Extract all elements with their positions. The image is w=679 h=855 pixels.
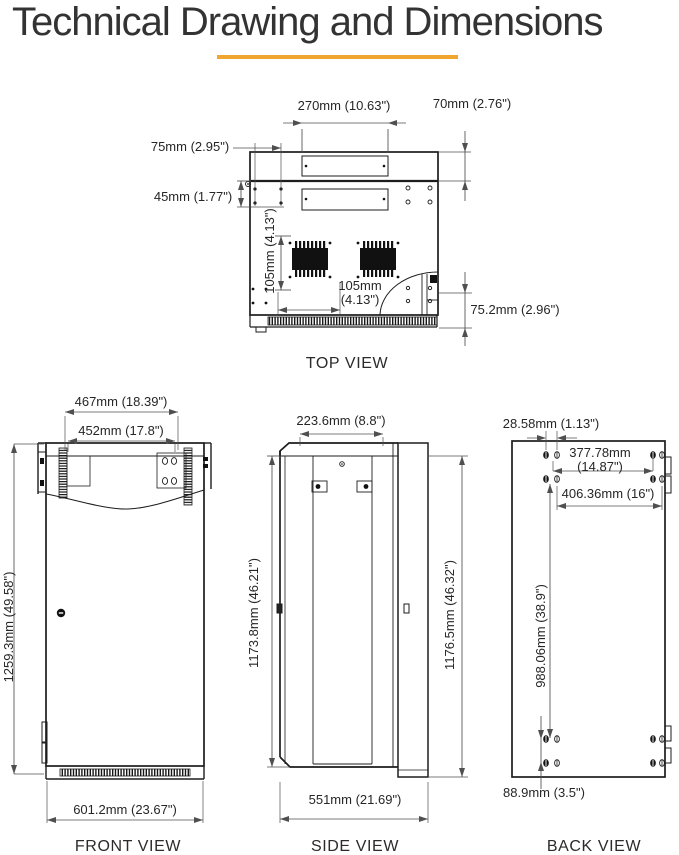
- front-vent-strip: [60, 769, 190, 776]
- dim-label-2858mm: 28.58mm (1.13"): [503, 417, 599, 431]
- dim-label-377mm: 377.78mm (14.87"): [569, 446, 630, 474]
- dim-105-line2: (4.13"): [338, 293, 381, 307]
- dim-label-75-2mm: 75.2mm (2.96"): [470, 303, 559, 317]
- wall-mount-plate: [398, 443, 428, 777]
- side-view-drawing: [277, 443, 428, 777]
- dim-label-467mm: 467mm (18.39"): [75, 395, 168, 409]
- foot: [256, 327, 266, 332]
- hinge-back-bottom-1: [665, 726, 671, 741]
- dim-label-1176mm: 1176.5mm (46.32"): [443, 560, 457, 670]
- front-view-drawing: [38, 443, 211, 779]
- dim-label-889mm: 88.9mm (3.5"): [503, 786, 585, 800]
- door-swing-arc: [380, 272, 438, 315]
- dim-377-line2: (14.87"): [569, 460, 630, 474]
- dim-label-105mm-vertical: 105mm (4.13"): [263, 208, 277, 294]
- dim-label-75mm: 75mm (2.95"): [151, 140, 229, 154]
- dim-label-452mm: 452mm (17.8"): [78, 424, 164, 438]
- top-vent-strip: [268, 317, 437, 325]
- hinge-back-bottom-2: [665, 748, 671, 763]
- cage-nut-holes: [162, 458, 176, 485]
- dim-label-551mm: 551mm (21.69"): [309, 793, 402, 807]
- fan-vent-left: [289, 241, 332, 278]
- hinge-back-top-2: [665, 476, 671, 493]
- hinge-back-top-1: [665, 457, 671, 474]
- latch-right: [404, 604, 409, 613]
- break-line: [46, 490, 204, 509]
- dim-label-70mm: 70mm (2.76"): [433, 97, 511, 111]
- dim-label-270mm: 270mm (10.63"): [298, 99, 391, 113]
- dim-label-1259mm: 1259.3mm (49.58"): [2, 572, 16, 683]
- dim-377-line1: 377.78mm: [569, 446, 630, 460]
- dim-label-1173mm: 1173.8mm (46.21"): [247, 558, 261, 668]
- front-view-label: FRONT VIEW: [75, 838, 181, 855]
- latch-left: [277, 604, 282, 613]
- dim-label-45mm: 45mm (1.77"): [154, 190, 232, 204]
- rack-rail-left: [59, 448, 67, 498]
- dim-label-406mm: 406.36mm (16"): [562, 487, 655, 501]
- top-view-screw-holes: [406, 186, 432, 303]
- dim-label-601mm: 601.2mm (23.67"): [73, 803, 177, 817]
- back-view-label: BACK VIEW: [547, 838, 641, 855]
- top-view-label: TOP VIEW: [306, 355, 388, 373]
- dim-label-105mm-horizontal: 105mm (4.13"): [338, 279, 381, 307]
- fan-vent-right: [357, 241, 400, 278]
- dim-label-988mm: 988.06mm (38.9"): [534, 584, 548, 688]
- front-view-dimensions: [11, 409, 203, 823]
- dim-label-223mm: 223.6mm (8.8"): [296, 414, 385, 428]
- side-view-label: SIDE VIEW: [311, 838, 399, 855]
- technical-drawing-page: Technical Drawing and Dimensions: [0, 0, 679, 855]
- dim-105-line1: 105mm: [338, 279, 381, 293]
